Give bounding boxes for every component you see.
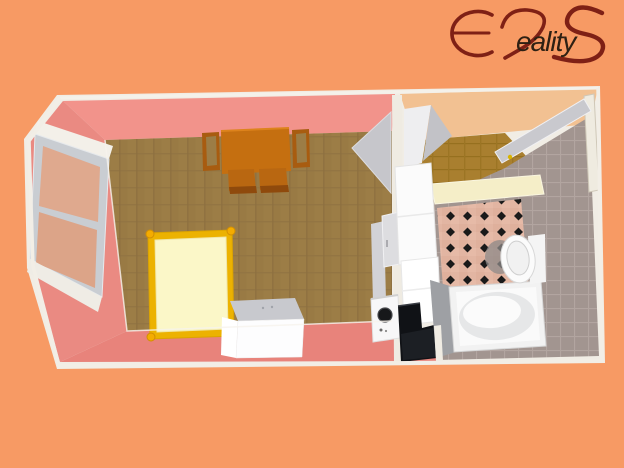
washing-machine-door	[378, 308, 392, 322]
bathtub	[430, 280, 546, 358]
white-cabinet-top	[230, 298, 304, 321]
white-cabinet-dot-2	[271, 306, 273, 308]
door-handle	[508, 155, 512, 159]
washing-machine-knob	[380, 329, 383, 332]
bed-knob-tl	[146, 230, 154, 238]
floorplan-render-page: eality	[0, 0, 624, 468]
bed-mattress	[155, 237, 228, 332]
washing-machine-knob-2	[385, 330, 387, 332]
apartment-3d-render: eality	[0, 0, 624, 468]
white-cabinet	[221, 298, 304, 358]
chair-left-opening	[206, 136, 217, 166]
chair-right-opening	[296, 133, 307, 163]
bed-knob-tr	[227, 227, 235, 235]
logo-suffix: eality	[516, 26, 578, 57]
white-cabinet-dot-1	[262, 307, 264, 309]
white-cabinet-left	[221, 317, 238, 358]
chair-bottom-2-back	[260, 185, 289, 193]
bed-knob-bl	[147, 333, 155, 341]
chair-bottom-1-back	[229, 186, 257, 194]
dining-table	[221, 128, 291, 174]
washing-machine	[371, 295, 400, 342]
